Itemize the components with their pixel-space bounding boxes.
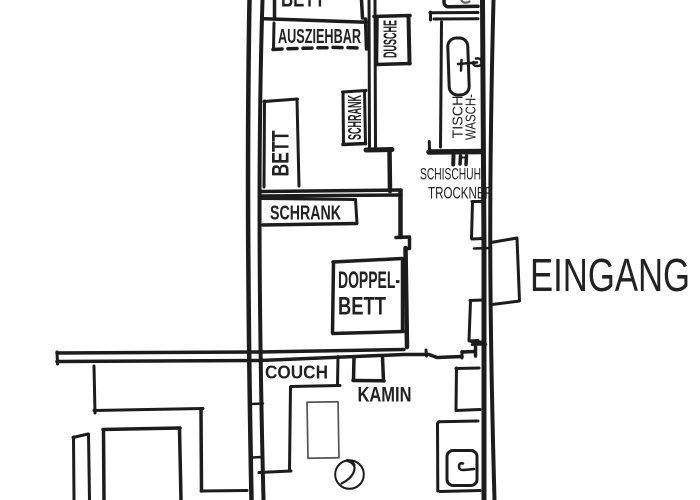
svg-text:BETT: BETT — [268, 130, 295, 176]
svg-text:TROCKNER: TROCKNER — [428, 184, 493, 203]
svg-text:KAMIN: KAMIN — [358, 384, 412, 407]
svg-text:BETT: BETT — [281, 0, 325, 13]
svg-text:SCHISCHUH: SCHISCHUH — [420, 165, 481, 184]
svg-text:EINGANG: EINGANG — [530, 249, 690, 301]
svg-text:DUSCHE: DUSCHE — [381, 20, 401, 58]
svg-text:COUCH: COUCH — [265, 362, 328, 383]
svg-text:SCHRANK: SCHRANK — [270, 203, 341, 225]
svg-text:TISCH: TISCH — [450, 96, 467, 139]
svg-text:SCHRANK: SCHRANK — [345, 95, 365, 140]
svg-text:BETT: BETT — [338, 293, 386, 321]
svg-text:AUSZIEHBAR: AUSZIEHBAR — [278, 26, 361, 48]
svg-text:DOPPEL-: DOPPEL- — [338, 267, 400, 294]
